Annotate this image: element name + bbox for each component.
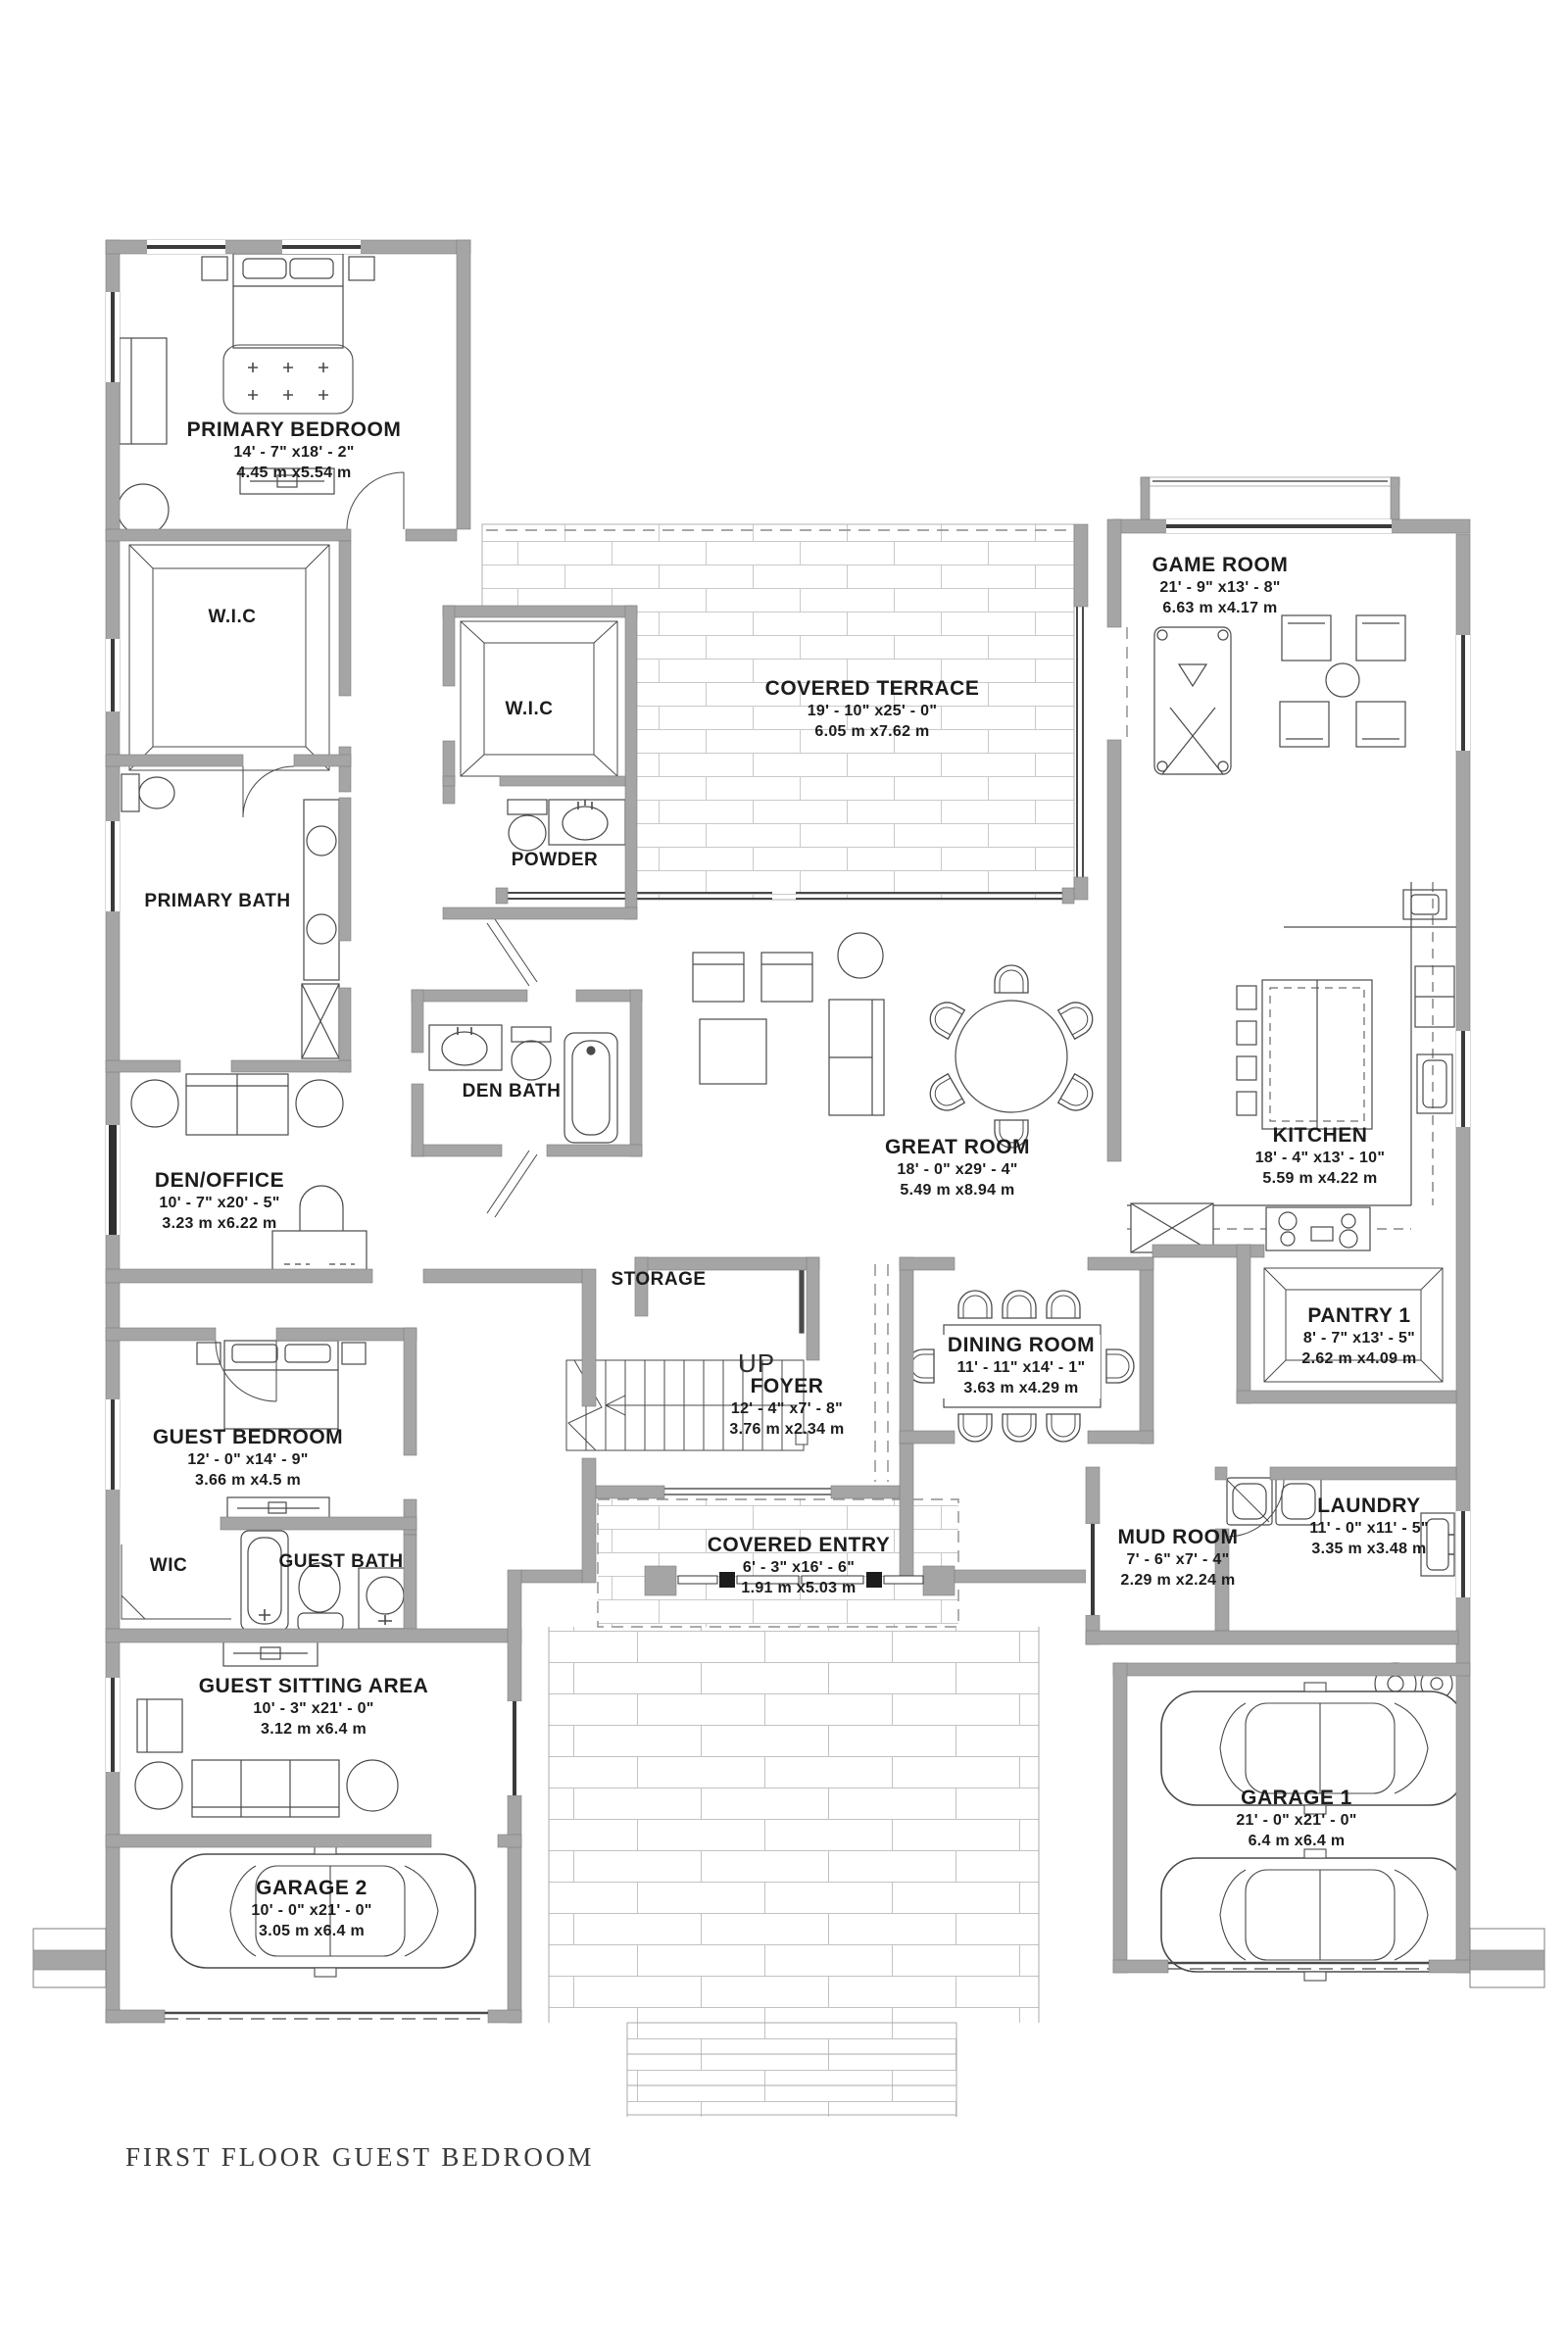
room-label-covered-terrace: COVERED TERRACE 19' - 10" x25' - 0" 6.05… <box>765 678 980 742</box>
room-dims-metric: 3.12 m x6.4 m <box>199 1721 429 1739</box>
room-dims-metric: 3.23 m x6.22 m <box>155 1215 284 1233</box>
room-name: DEN BATH <box>463 1082 562 1102</box>
room-dims-metric: 2.62 m x4.09 m <box>1301 1350 1416 1368</box>
bathtub-icon <box>564 1033 617 1143</box>
room-name: WIC <box>150 1556 187 1576</box>
room-name: COVERED TERRACE <box>765 678 980 700</box>
club-chair-icon <box>1280 615 1405 747</box>
armchair-icon <box>761 953 812 1002</box>
room-dims-metric: 2.29 m x2.24 m <box>1118 1572 1239 1590</box>
room-name: FOYER <box>729 1376 844 1397</box>
room-label-guest-sitting-area: GUEST SITTING AREA 10' - 3" x21' - 0" 3.… <box>199 1676 429 1739</box>
car-icon <box>1161 1849 1465 1981</box>
round-chair-icon <box>838 933 883 978</box>
toilet-icon <box>122 774 174 811</box>
armchair-icon <box>137 1699 182 1752</box>
room-dims-imperial: 18' - 4" x13' - 10" <box>1255 1150 1386 1167</box>
dresser-icon <box>227 1497 329 1519</box>
room-dims-imperial: 10' - 7" x20' - 5" <box>155 1195 284 1212</box>
room-name: GUEST BATH <box>278 1552 403 1572</box>
room-label-game-room: GAME ROOM 21' - 9" x13' - 8" 6.63 m x4.1… <box>1152 555 1289 618</box>
pool-table-icon <box>1154 627 1231 774</box>
room-label-kitchen: KITCHEN 18' - 4" x13' - 10" 5.59 m x4.22… <box>1255 1125 1386 1189</box>
toilet-icon <box>298 1563 343 1631</box>
room-dims-imperial: 7' - 6" x7' - 4" <box>1118 1551 1239 1569</box>
room-dims-imperial: 21' - 9" x13' - 8" <box>1152 579 1289 597</box>
round-chair-icon <box>296 1080 343 1127</box>
room-dims-metric: 3.76 m x2.34 m <box>729 1421 844 1439</box>
storage-door-icon <box>800 1270 804 1333</box>
room-name: DEN/OFFICE <box>155 1170 284 1192</box>
room-name: GUEST SITTING AREA <box>199 1676 429 1697</box>
room-name: KITCHEN <box>1255 1125 1386 1147</box>
room-label-guest-bedroom: GUEST BEDROOM 12' - 0" x14' - 9" 3.66 m … <box>153 1427 343 1491</box>
round-dining-table-icon <box>924 965 1099 1148</box>
room-name: MUD ROOM <box>1118 1527 1239 1548</box>
room-label-laundry: LAUNDRY 11' - 0" x11' - 5" 3.35 m x3.48 … <box>1309 1495 1429 1559</box>
room-label-wic-hall: W.I.C <box>506 700 554 719</box>
room-dims-metric: 6.05 m x7.62 m <box>765 723 980 741</box>
room-name: LAUNDRY <box>1309 1495 1429 1517</box>
round-chair-icon <box>135 1762 182 1809</box>
room-name: COVERED ENTRY <box>708 1535 891 1556</box>
stove-icon <box>1266 1207 1370 1250</box>
room-label-garage-1: GARAGE 1 21' - 0" x21' - 0" 6.4 m x6.4 m <box>1236 1788 1356 1851</box>
room-label-foyer: FOYER 12' - 4" x7' - 8" 3.76 m x2.34 m <box>729 1376 844 1440</box>
room-dims-imperial: 11' - 0" x11' - 5" <box>1309 1520 1429 1538</box>
room-dims-metric: 6.63 m x4.17 m <box>1152 600 1289 617</box>
room-name: STORAGE <box>611 1270 706 1290</box>
room-dims-metric: 4.45 m x5.54 m <box>187 465 402 482</box>
bedroom-sofa-icon <box>120 338 167 444</box>
room-label-den-bath: DEN BATH <box>463 1082 562 1102</box>
tv-console-icon <box>223 1641 318 1666</box>
room-dims-imperial: 21' - 0" x21' - 0" <box>1236 1812 1356 1830</box>
washer-dryer-icon <box>1227 1478 1321 1525</box>
room-name: GAME ROOM <box>1152 555 1289 576</box>
room-name: GREAT ROOM <box>885 1137 1030 1158</box>
sofa-icon <box>192 1760 339 1817</box>
kitchen-island-icon <box>1237 980 1372 1129</box>
sofa-icon <box>829 1000 884 1115</box>
side-table-icon <box>1326 663 1359 697</box>
room-label-storage: STORAGE <box>611 1270 706 1290</box>
floor-plan-page: PRIMARY BEDROOM 14' - 7" x18' - 2" 4.45 … <box>0 0 1568 2352</box>
room-dims-metric: 6.4 m x6.4 m <box>1236 1833 1356 1850</box>
room-name: GUEST BEDROOM <box>153 1427 343 1448</box>
room-label-covered-entry: COVERED ENTRY 6' - 3" x16' - 6" 1.91 m x… <box>708 1535 891 1598</box>
room-dims-metric: 3.05 m x6.4 m <box>251 1923 371 1940</box>
room-name: PRIMARY BATH <box>144 892 290 911</box>
room-dims-imperial: 6' - 3" x16' - 6" <box>708 1559 891 1577</box>
room-label-dining-room: DINING ROOM 11' - 11" x14' - 1" 3.63 m x… <box>942 1335 1101 1398</box>
armchair-icon <box>693 953 744 1002</box>
round-chair-icon <box>347 1760 398 1811</box>
closet-shelves-icon <box>129 545 329 770</box>
desk-icon <box>272 1186 367 1272</box>
shower-icon <box>302 984 339 1058</box>
room-name: PANTRY 1 <box>1301 1305 1416 1327</box>
office-sofa-icon <box>186 1074 288 1135</box>
sink-icon <box>429 1025 502 1070</box>
toilet-icon <box>512 1027 551 1080</box>
room-dims-imperial: 8' - 7" x13' - 5" <box>1301 1330 1416 1347</box>
room-dims-imperial: 14' - 7" x18' - 2" <box>187 444 402 462</box>
room-dims-metric: 5.49 m x8.94 m <box>885 1182 1030 1200</box>
room-name: W.I.C <box>209 608 257 627</box>
room-label-powder: POWDER <box>512 851 599 870</box>
room-label-great-room: GREAT ROOM 18' - 0" x29' - 4" 5.49 m x8.… <box>885 1137 1030 1200</box>
room-name: POWDER <box>512 851 599 870</box>
room-dims-imperial: 18' - 0" x29' - 4" <box>885 1161 1030 1179</box>
room-name: GARAGE 2 <box>251 1878 371 1899</box>
room-label-guest-bath: GUEST BATH <box>278 1552 403 1572</box>
room-label-wic-guest: WIC <box>150 1556 187 1576</box>
room-dims-imperial: 19' - 10" x25' - 0" <box>765 703 980 720</box>
room-label-den-office: DEN/OFFICE 10' - 7" x20' - 5" 3.23 m x6.… <box>155 1170 284 1234</box>
room-dims-metric: 3.63 m x4.29 m <box>948 1380 1095 1397</box>
room-dims-metric: 3.66 m x4.5 m <box>153 1472 343 1490</box>
sheet-title: FIRST FLOOR GUEST BEDROOM <box>125 2142 594 2173</box>
vanity-double-sink-icon <box>304 800 339 980</box>
room-label-primary-bath: PRIMARY BATH <box>144 892 290 911</box>
room-dims-metric: 5.59 m x4.22 m <box>1255 1170 1386 1188</box>
room-label-primary-bedroom: PRIMARY BEDROOM 14' - 7" x18' - 2" 4.45 … <box>187 419 402 483</box>
room-dims-imperial: 10' - 0" x21' - 0" <box>251 1902 371 1920</box>
room-label-mud-room: MUD ROOM 7' - 6" x7' - 4" 2.29 m x2.24 m <box>1118 1527 1239 1591</box>
coffee-table-icon <box>700 1019 766 1084</box>
room-name: GARAGE 1 <box>1236 1788 1356 1809</box>
front-walkway-paving <box>549 1627 1039 2117</box>
room-label-pantry-1: PANTRY 1 8' - 7" x13' - 5" 2.62 m x4.09 … <box>1301 1305 1416 1369</box>
room-dims-imperial: 12' - 0" x14' - 9" <box>153 1451 343 1469</box>
room-name: DINING ROOM <box>948 1335 1095 1356</box>
room-dims-metric: 3.35 m x3.48 m <box>1309 1541 1429 1558</box>
bedroom-rug-icon <box>223 345 353 414</box>
room-dims-metric: 1.91 m x5.03 m <box>708 1580 891 1597</box>
room-dims-imperial: 11' - 11" x14' - 1" <box>948 1359 1095 1377</box>
room-name: PRIMARY BEDROOM <box>187 419 402 441</box>
round-chair-icon <box>118 484 169 535</box>
room-label-wic-primary: W.I.C <box>209 608 257 627</box>
bed-icon <box>202 254 374 348</box>
room-dims-imperial: 12' - 4" x7' - 8" <box>729 1400 844 1418</box>
room-dims-imperial: 10' - 3" x21' - 0" <box>199 1700 429 1718</box>
room-label-garage-2: GARAGE 2 10' - 0" x21' - 0" 3.05 m x6.4 … <box>251 1878 371 1941</box>
round-chair-icon <box>131 1080 178 1127</box>
bathtub-icon <box>241 1531 288 1631</box>
room-name: W.I.C <box>506 700 554 719</box>
bed-icon <box>197 1341 366 1429</box>
